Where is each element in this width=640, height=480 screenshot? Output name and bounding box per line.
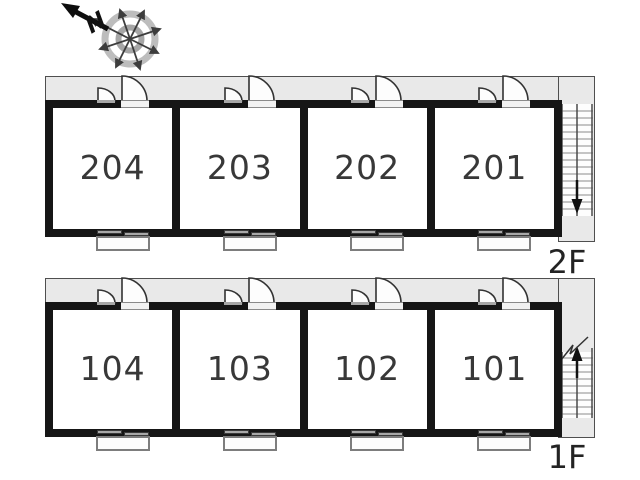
entry-door-swing-icon: [97, 75, 149, 101]
balcony-step: [350, 236, 404, 251]
large-door-arc-icon: [503, 278, 528, 303]
room-204: 204: [53, 108, 180, 229]
room-number-label: 104: [53, 348, 172, 387]
balcony-step: [350, 436, 404, 451]
staircase: [561, 104, 593, 216]
room-102: 102: [308, 310, 435, 429]
room-number-label: 204: [53, 147, 172, 186]
large-door-arc-icon: [376, 76, 401, 101]
room-number-label: 101: [435, 348, 554, 387]
doorway-opening: [248, 302, 276, 310]
balcony-step: [96, 436, 150, 451]
entry-door-swing-icon: [224, 277, 276, 303]
balcony-step: [223, 236, 277, 251]
floor-block-1f: 104 103 102 101 1F: [45, 278, 595, 480]
large-door-arc-icon: [376, 278, 401, 303]
doorway-opening: [121, 100, 149, 108]
room-202: 202: [308, 108, 435, 229]
entry-door-swing-icon: [97, 277, 149, 303]
room-number-label: 103: [180, 348, 299, 387]
door-sill: [351, 302, 369, 305]
large-door-arc-icon: [249, 76, 274, 101]
doorway-opening: [502, 100, 530, 108]
door-sill: [478, 302, 496, 305]
balcony-step: [477, 236, 531, 251]
floor-label: 2F: [539, 243, 595, 281]
staircase: [561, 344, 593, 418]
doorway-opening: [375, 100, 403, 108]
room-203: 203: [180, 108, 307, 229]
floor-block-2f: 204 203 202 201 2F: [45, 76, 595, 278]
room-101: 101: [435, 310, 554, 429]
rooms-row: 104 103 102 101: [45, 302, 562, 437]
balcony-step: [223, 436, 277, 451]
compass-rose: N: [50, 1, 175, 73]
floor-plan-canvas: N: [0, 0, 640, 480]
room-number-label: 102: [308, 348, 427, 387]
stairs-up-icon: [561, 344, 593, 418]
door-sill: [224, 100, 242, 103]
doorway-opening: [375, 302, 403, 310]
door-sill: [351, 100, 369, 103]
room-number-label: 202: [308, 147, 427, 186]
room-number-label: 201: [435, 147, 554, 186]
large-door-arc-icon: [249, 278, 274, 303]
floor-label: 1F: [539, 438, 595, 476]
room-201: 201: [435, 108, 554, 229]
room-104: 104: [53, 310, 180, 429]
door-sill: [97, 302, 115, 305]
doorway-opening: [502, 302, 530, 310]
entry-door-swing-icon: [224, 75, 276, 101]
entry-door-swing-icon: [351, 75, 403, 101]
large-door-arc-icon: [503, 76, 528, 101]
room-number-label: 203: [180, 147, 299, 186]
doorway-opening: [248, 100, 276, 108]
rooms-row: 204 203 202 201: [45, 100, 562, 237]
room-103: 103: [180, 310, 307, 429]
balcony-step: [96, 236, 150, 251]
door-sill: [478, 100, 496, 103]
north-arrowhead-icon: [61, 3, 80, 18]
door-sill: [224, 302, 242, 305]
door-sill: [97, 100, 115, 103]
large-door-arc-icon: [122, 76, 147, 101]
doorway-opening: [121, 302, 149, 310]
large-door-arc-icon: [122, 278, 147, 303]
entry-door-swing-icon: [478, 75, 530, 101]
stairs-down-icon: [561, 104, 593, 216]
entry-door-swing-icon: [478, 277, 530, 303]
balcony-step: [477, 436, 531, 451]
entry-door-swing-icon: [351, 277, 403, 303]
